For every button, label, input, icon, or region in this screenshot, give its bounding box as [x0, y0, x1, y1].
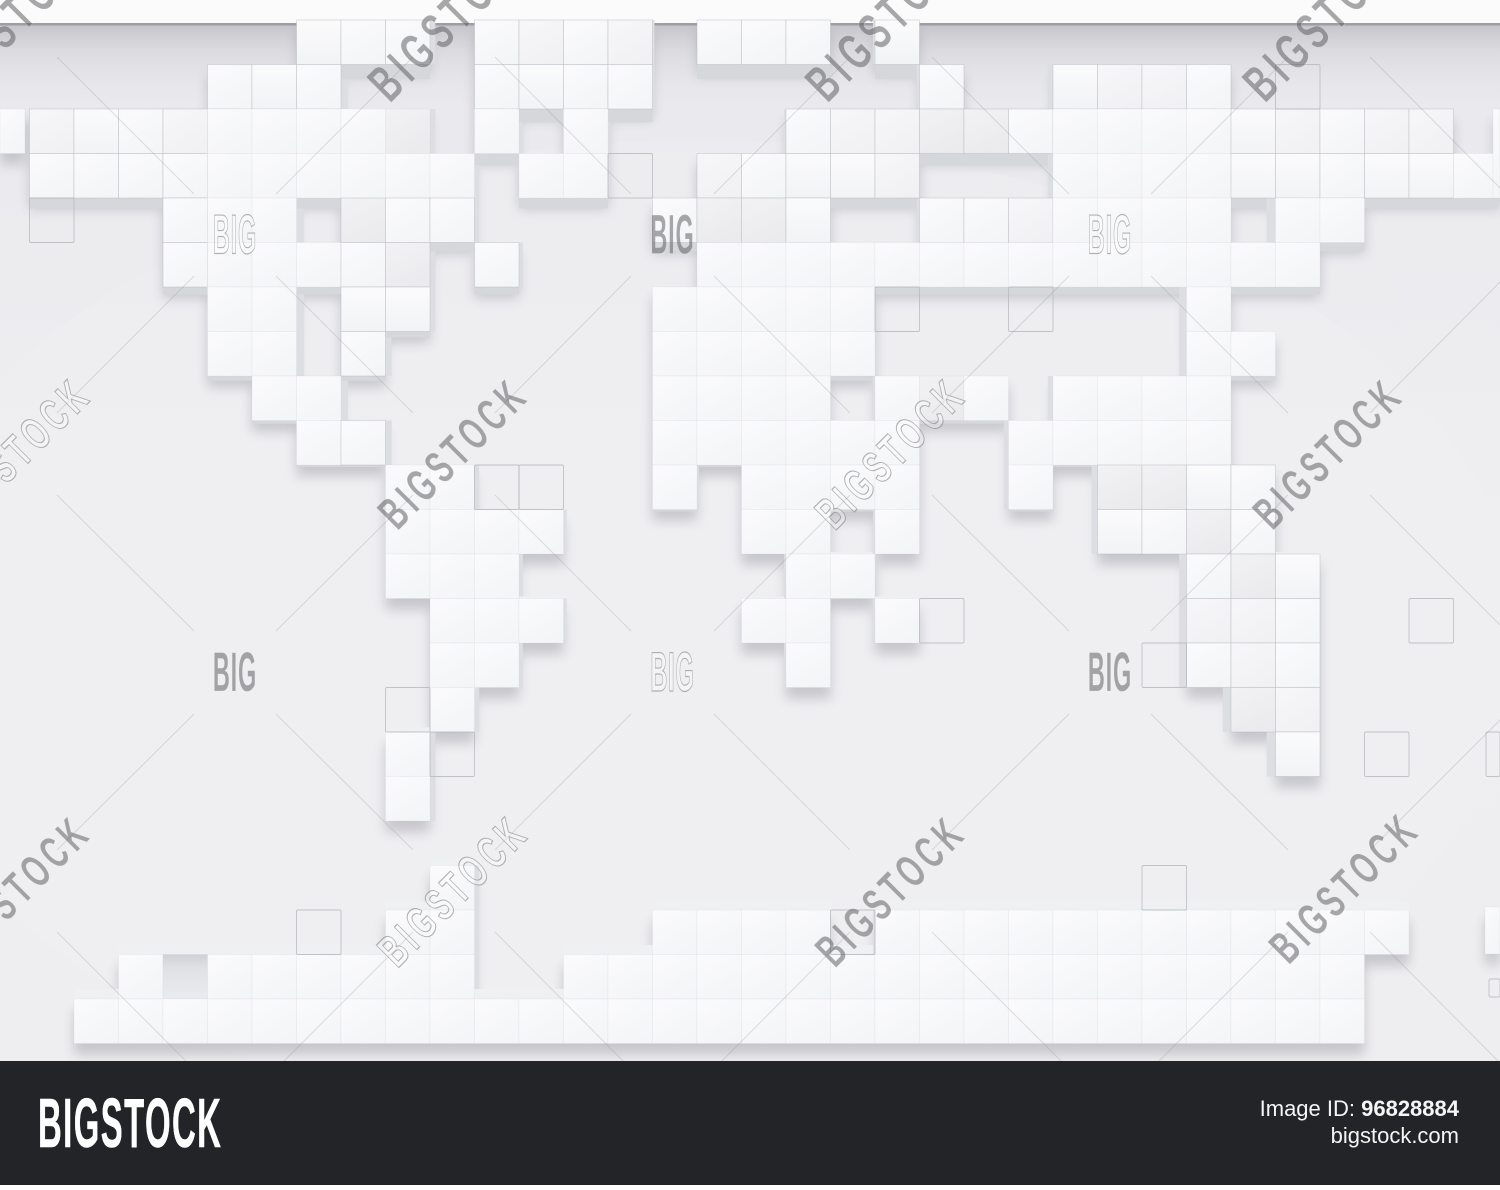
svg-text:BIG: BIG: [650, 641, 694, 704]
svg-text:BIG: BIG: [213, 641, 257, 704]
svg-text:BIG: BIG: [1088, 204, 1132, 267]
svg-text:bigstock.com: bigstock.com: [1331, 1123, 1459, 1148]
svg-text:Image ID: 96828884: Image ID: 96828884: [1260, 1096, 1460, 1121]
svg-text:BIG: BIG: [1088, 641, 1132, 704]
svg-text:BIG: BIG: [650, 204, 694, 267]
svg-text:BIG: BIG: [213, 204, 257, 267]
svg-text:BIGSTOCK: BIGSTOCK: [38, 1083, 222, 1162]
